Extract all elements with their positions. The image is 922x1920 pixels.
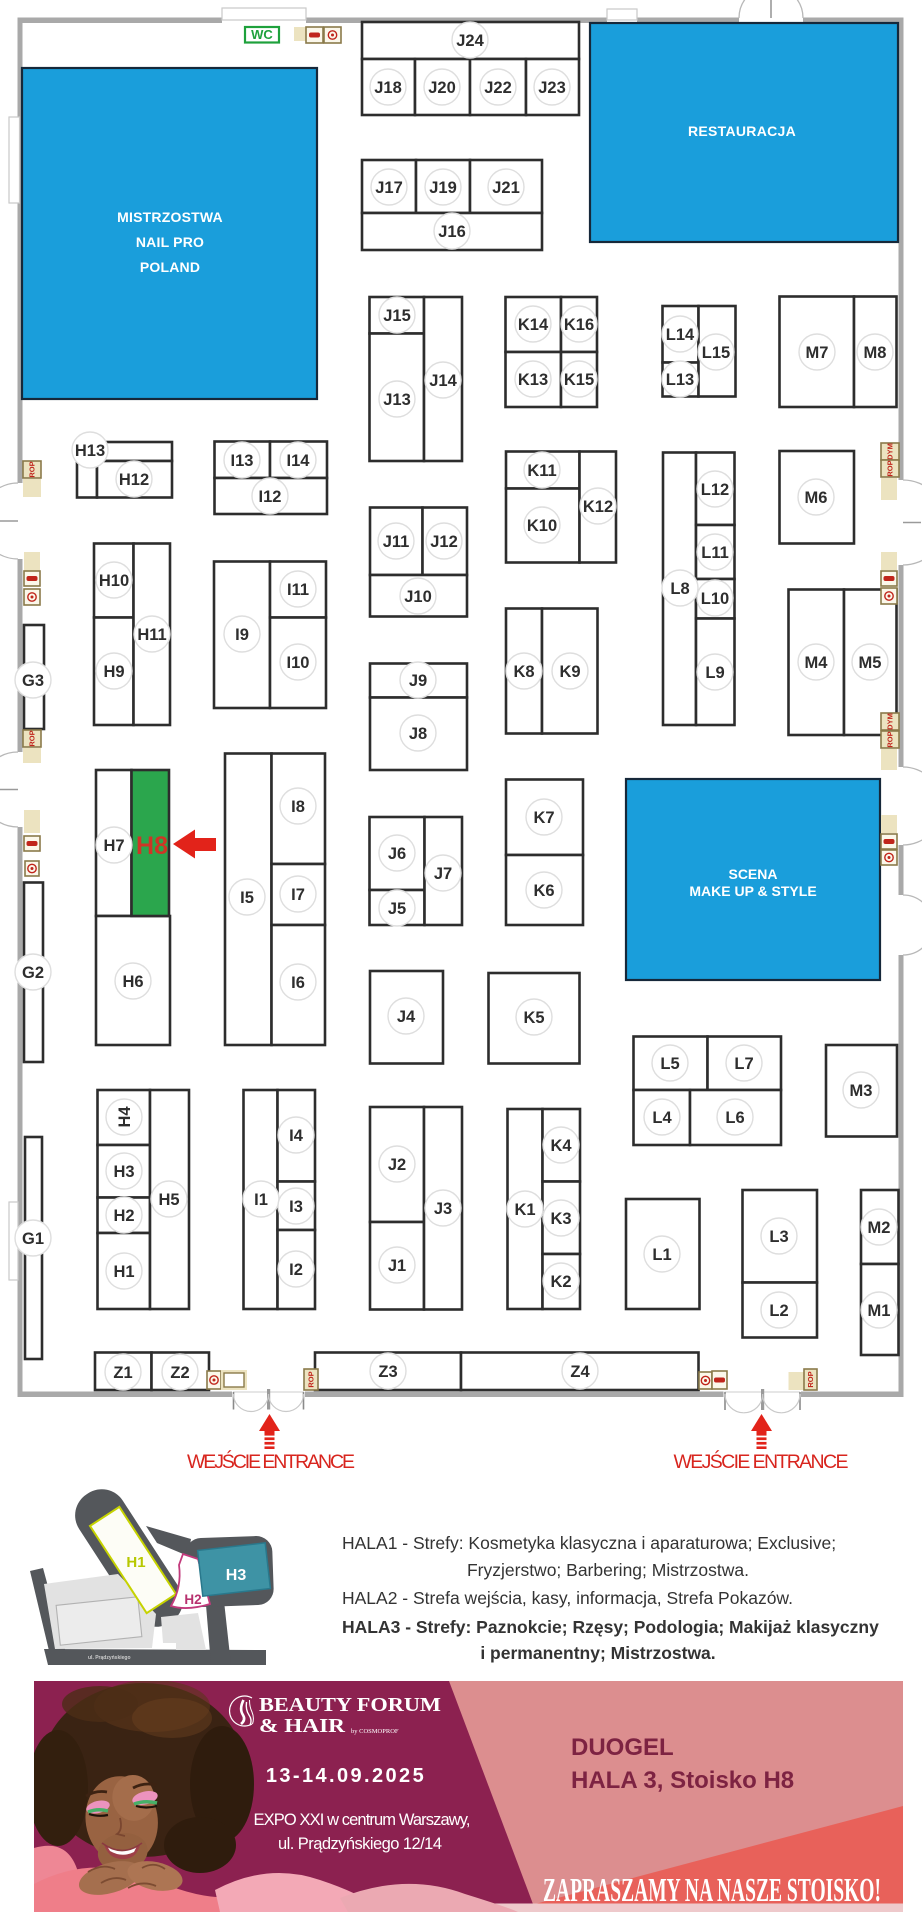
svg-text:DYM: DYM xyxy=(885,713,894,730)
svg-text:L12: L12 xyxy=(701,481,729,499)
svg-text:K2: K2 xyxy=(550,1273,571,1291)
svg-text:J15: J15 xyxy=(383,307,411,325)
svg-text:H3: H3 xyxy=(113,1163,134,1181)
svg-text:H8: H8 xyxy=(136,832,168,860)
svg-text:J19: J19 xyxy=(429,179,457,197)
svg-text:H2: H2 xyxy=(184,1592,201,1607)
svg-text:L1: L1 xyxy=(652,1246,671,1264)
svg-text:DUOGEL: DUOGEL xyxy=(571,1734,674,1761)
svg-text:J3: J3 xyxy=(434,1200,452,1218)
svg-text:WEJŚCIE ENTRANCE: WEJŚCIE ENTRANCE xyxy=(187,1449,355,1473)
svg-text:G1: G1 xyxy=(22,1230,44,1248)
svg-text:by COSMOPROF: by COSMOPROF xyxy=(351,1728,399,1735)
svg-text:K1: K1 xyxy=(514,1201,535,1219)
svg-text:J2: J2 xyxy=(388,1156,406,1174)
svg-text:H4: H4 xyxy=(116,1106,134,1128)
svg-text:ZAPRASZAMY NA NASZE STOISKO!: ZAPRASZAMY NA NASZE STOISKO! xyxy=(543,1872,881,1909)
svg-text:M3: M3 xyxy=(850,1082,873,1100)
svg-text:Fryzjerstwo; Barbering; Mistrz: Fryzjerstwo; Barbering; Mistrzostwa. xyxy=(467,1560,749,1580)
svg-text:L8: L8 xyxy=(670,580,689,598)
svg-text:i permanentny; Mistrzostwa.: i permanentny; Mistrzostwa. xyxy=(480,1643,715,1663)
svg-text:MISTRZOSTWA: MISTRZOSTWA xyxy=(117,209,223,225)
svg-text:L2: L2 xyxy=(769,1302,788,1320)
svg-text:J9: J9 xyxy=(409,672,427,690)
svg-text:K14: K14 xyxy=(518,316,549,334)
svg-text:M4: M4 xyxy=(805,654,829,672)
svg-text:H3: H3 xyxy=(226,1567,247,1584)
svg-text:K10: K10 xyxy=(527,517,557,535)
svg-text:K9: K9 xyxy=(559,663,580,681)
svg-text:NAIL PRO: NAIL PRO xyxy=(136,234,204,250)
svg-text:HALA3 - Strefy: Paznokcie; Rzę: HALA3 - Strefy: Paznokcie; Rzęsy; Podolo… xyxy=(342,1617,879,1637)
svg-text:J18: J18 xyxy=(374,79,402,97)
svg-text:L13: L13 xyxy=(666,371,694,389)
svg-text:I3: I3 xyxy=(289,1198,303,1216)
svg-text:Z3: Z3 xyxy=(378,1363,397,1381)
svg-text:H9: H9 xyxy=(103,663,124,681)
svg-text:K5: K5 xyxy=(523,1009,544,1027)
svg-text:H1: H1 xyxy=(113,1263,134,1281)
svg-text:L11: L11 xyxy=(701,544,729,562)
svg-text:ROP: ROP xyxy=(306,1371,315,1387)
svg-text:H11: H11 xyxy=(137,626,166,644)
svg-text:H1: H1 xyxy=(126,1554,145,1571)
svg-text:I13: I13 xyxy=(231,452,254,470)
svg-text:ROP: ROP xyxy=(27,461,36,477)
svg-text:K4: K4 xyxy=(550,1137,572,1155)
svg-text:EXPO XXI w centrum Warszawy,: EXPO XXI w centrum Warszawy, xyxy=(254,1811,471,1829)
svg-text:I5: I5 xyxy=(240,889,254,907)
svg-text:H7: H7 xyxy=(103,837,124,855)
svg-text:J20: J20 xyxy=(428,79,456,97)
svg-text:RESTAURACJA: RESTAURACJA xyxy=(688,123,796,139)
svg-text:J13: J13 xyxy=(383,391,411,409)
svg-text:K11: K11 xyxy=(527,462,556,480)
svg-text:L6: L6 xyxy=(725,1109,744,1127)
svg-text:K12: K12 xyxy=(583,498,613,516)
svg-text:J21: J21 xyxy=(492,179,520,197)
svg-text:M1: M1 xyxy=(868,1302,891,1320)
svg-text:I1: I1 xyxy=(254,1191,268,1209)
svg-text:BEAUTY FORUM: BEAUTY FORUM xyxy=(259,1695,441,1716)
svg-text:ROP: ROP xyxy=(27,730,36,746)
svg-text:ROP: ROP xyxy=(885,731,894,747)
svg-text:& HAIR: & HAIR xyxy=(259,1716,346,1737)
svg-text:M8: M8 xyxy=(864,344,887,362)
svg-text:J12: J12 xyxy=(430,533,458,551)
svg-text:Z1: Z1 xyxy=(113,1364,132,1382)
svg-text:J7: J7 xyxy=(434,865,452,883)
svg-text:K6: K6 xyxy=(533,882,554,900)
svg-text:ROP: ROP xyxy=(806,1371,815,1387)
svg-text:M7: M7 xyxy=(806,344,829,362)
svg-text:K15: K15 xyxy=(564,371,594,389)
svg-text:SCENA: SCENA xyxy=(728,866,777,882)
svg-text:J17: J17 xyxy=(375,179,403,197)
svg-text:I6: I6 xyxy=(291,974,305,992)
svg-text:J23: J23 xyxy=(538,79,566,97)
svg-text:M5: M5 xyxy=(859,654,882,672)
svg-text:K13: K13 xyxy=(518,371,548,389)
svg-text:J22: J22 xyxy=(484,79,512,97)
svg-text:M6: M6 xyxy=(805,489,828,507)
svg-text:I14: I14 xyxy=(287,452,311,470)
svg-text:HALA2 - Strefa wejścia, kasy,: HALA2 - Strefa wejścia, kasy, informacja… xyxy=(342,1588,793,1608)
svg-text:ul. Prądzyńskiego 12/14: ul. Prądzyńskiego 12/14 xyxy=(278,1835,442,1853)
svg-text:G3: G3 xyxy=(22,672,44,690)
svg-text:POLAND: POLAND xyxy=(140,259,200,275)
svg-text:J5: J5 xyxy=(388,900,406,918)
svg-text:L14: L14 xyxy=(666,326,695,344)
svg-text:H2: H2 xyxy=(113,1207,134,1225)
svg-text:K7: K7 xyxy=(533,809,554,827)
svg-text:K8: K8 xyxy=(513,663,534,681)
svg-text:L10: L10 xyxy=(701,590,729,608)
svg-text:J10: J10 xyxy=(404,588,432,606)
svg-text:L15: L15 xyxy=(702,344,730,362)
svg-text:WEJŚCIE ENTRANCE: WEJŚCIE ENTRANCE xyxy=(674,1449,849,1473)
svg-text:L7: L7 xyxy=(734,1055,753,1073)
svg-text:H13: H13 xyxy=(75,442,105,460)
svg-text:J24: J24 xyxy=(456,32,484,50)
svg-text:J8: J8 xyxy=(409,725,427,743)
svg-text:HALA1 - Strefy: Kosmetyka klas: HALA1 - Strefy: Kosmetyka klasyczna i ap… xyxy=(342,1533,836,1553)
svg-text:J14: J14 xyxy=(429,372,457,390)
svg-text:L9: L9 xyxy=(705,664,724,682)
svg-text:13-14.09.2025: 13-14.09.2025 xyxy=(266,1765,426,1787)
svg-text:H12: H12 xyxy=(119,471,149,489)
svg-text:K16: K16 xyxy=(564,316,594,334)
svg-text:J11: J11 xyxy=(383,533,410,551)
svg-text:Z4: Z4 xyxy=(570,1363,590,1381)
svg-text:I7: I7 xyxy=(291,886,305,904)
svg-text:I10: I10 xyxy=(287,654,310,672)
svg-text:I9: I9 xyxy=(235,626,249,644)
svg-text:L5: L5 xyxy=(660,1055,679,1073)
svg-text:Z2: Z2 xyxy=(170,1364,189,1382)
svg-text:J6: J6 xyxy=(388,845,406,863)
svg-text:H5: H5 xyxy=(158,1191,179,1209)
svg-text:M2: M2 xyxy=(868,1219,891,1237)
svg-text:I4: I4 xyxy=(289,1127,304,1145)
svg-text:HALA 3, Stoisko H8: HALA 3, Stoisko H8 xyxy=(571,1767,794,1794)
svg-text:WC: WC xyxy=(251,27,273,42)
svg-text:J4: J4 xyxy=(397,1008,416,1026)
svg-text:H6: H6 xyxy=(122,973,143,991)
svg-text:L3: L3 xyxy=(769,1228,788,1246)
svg-text:ROP: ROP xyxy=(885,460,894,476)
svg-text:ul. Prądzyńskiego: ul. Prądzyńskiego xyxy=(88,1655,131,1661)
svg-text:K3: K3 xyxy=(550,1210,571,1228)
svg-text:J16: J16 xyxy=(438,223,466,241)
svg-text:I8: I8 xyxy=(291,798,305,816)
svg-text:MAKE UP & STYLE: MAKE UP & STYLE xyxy=(689,883,816,899)
svg-text:J1: J1 xyxy=(388,1257,406,1275)
svg-text:I2: I2 xyxy=(289,1261,303,1279)
svg-text:L4: L4 xyxy=(652,1109,672,1127)
svg-text:G2: G2 xyxy=(22,964,44,982)
svg-text:I12: I12 xyxy=(259,488,282,506)
svg-text:DYM: DYM xyxy=(885,443,894,460)
svg-text:H10: H10 xyxy=(99,572,129,590)
svg-text:I11: I11 xyxy=(287,581,309,599)
